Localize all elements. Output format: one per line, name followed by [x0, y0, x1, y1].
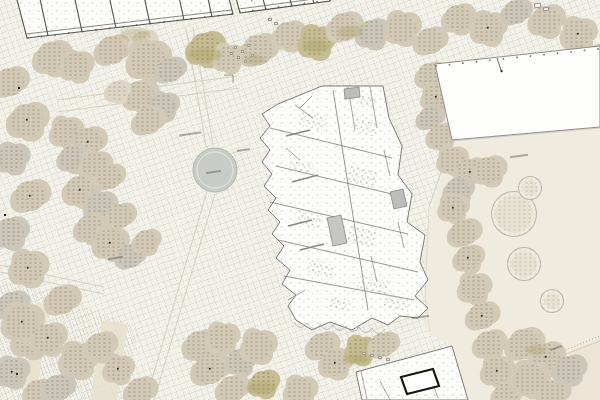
post-marker [4, 214, 6, 216]
post-marker [16, 373, 18, 375]
post-marker-layer [0, 0, 600, 400]
site-plan-canvas [0, 0, 600, 400]
post-marker [18, 87, 20, 89]
